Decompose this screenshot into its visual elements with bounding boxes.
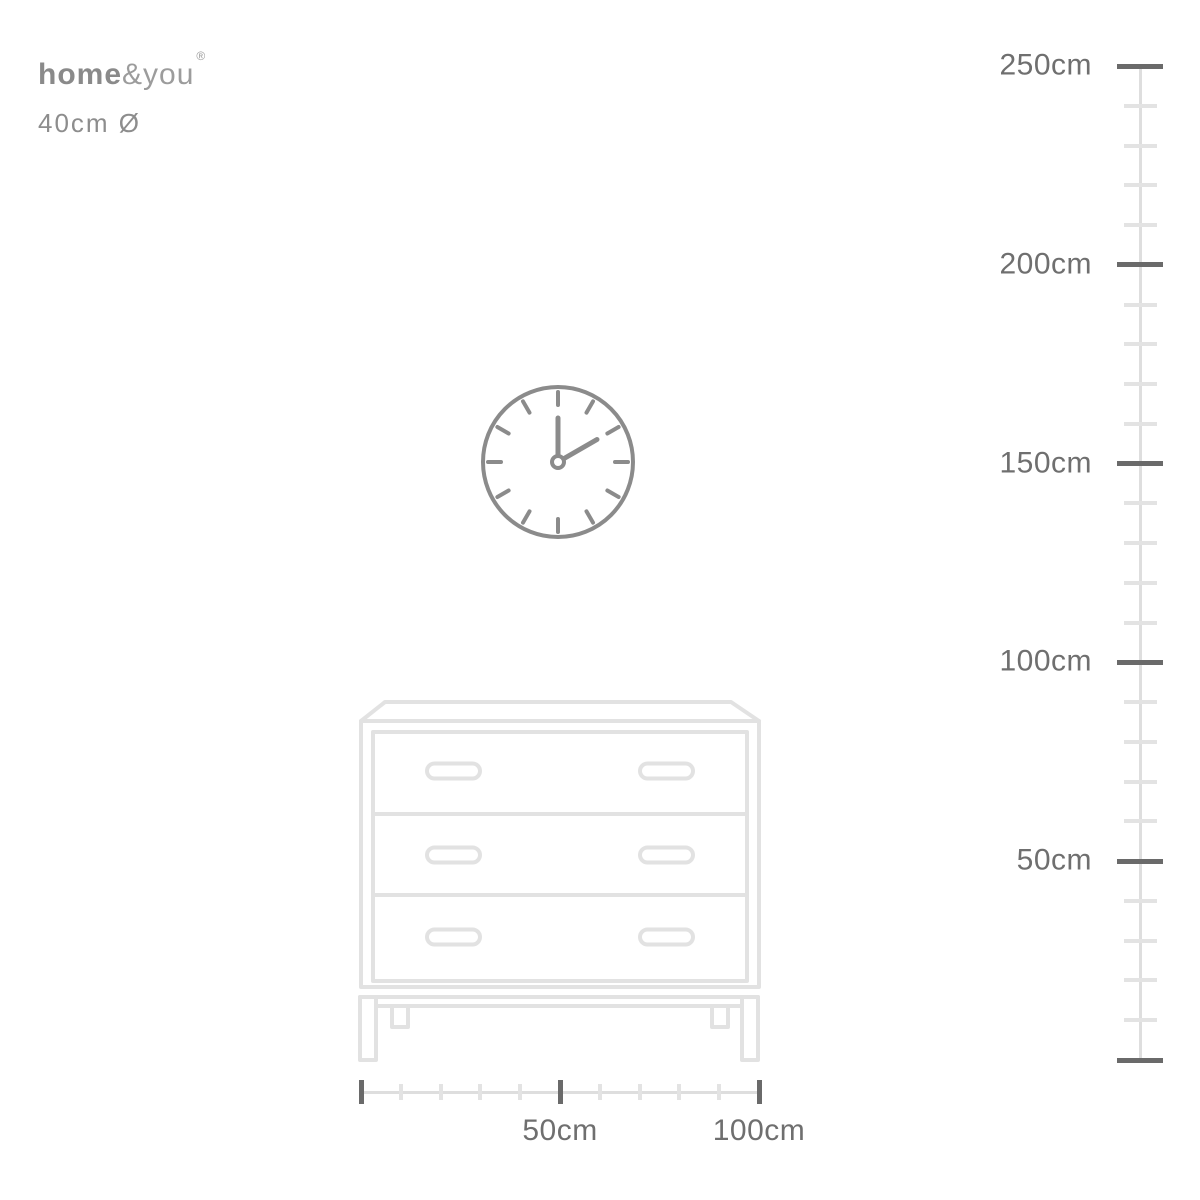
- drawer-handle: [640, 848, 693, 863]
- ruler-tick-major: [757, 1080, 762, 1104]
- ruler-tick-minor: [1124, 501, 1157, 505]
- ruler-tick-minor: [1124, 342, 1157, 346]
- ruler-tick-minor: [439, 1084, 443, 1100]
- ruler-tick-major: [1117, 660, 1163, 665]
- clock-hands: [552, 418, 597, 468]
- drawer-handle: [640, 764, 693, 779]
- brand-logo: home&you® 40cm Ø: [38, 52, 204, 139]
- product-dimension-note: 40cm Ø: [38, 108, 204, 139]
- dresser-top-face: [361, 702, 759, 721]
- ruler-tick-minor: [717, 1084, 721, 1100]
- ruler-tick-minor: [1124, 382, 1157, 386]
- leg-rail: [360, 997, 758, 1006]
- ruler-tick-minor: [1124, 581, 1157, 585]
- clock-hub: [552, 456, 564, 468]
- ruler-tick-minor: [1124, 978, 1157, 982]
- brand-logo-you: &you: [122, 58, 194, 91]
- leg-inner: [392, 1006, 408, 1027]
- ruler-tick-minor: [1124, 303, 1157, 307]
- ruler-tick-minor: [598, 1084, 602, 1100]
- leg-outer: [742, 997, 758, 1060]
- ruler-tick-minor: [1124, 104, 1157, 108]
- ruler-label-250cm: 250cm: [999, 48, 1092, 82]
- drawer-handle: [640, 930, 693, 945]
- ruler-tick-minor: [677, 1084, 681, 1100]
- ruler-tick-major: [1117, 64, 1163, 69]
- ruler-tick-minor: [1124, 780, 1157, 784]
- ruler-tick-minor: [638, 1084, 642, 1100]
- dresser-illustration: [355, 695, 765, 1065]
- ruler-tick-major: [558, 1080, 563, 1104]
- ruler-tick-minor: [1124, 422, 1157, 426]
- ruler-tick-major: [359, 1080, 364, 1104]
- ruler-axis-vertical: [1139, 66, 1142, 1060]
- leg-outer: [360, 997, 376, 1060]
- ruler-tick-minor: [1124, 819, 1157, 823]
- ruler-tick-minor: [478, 1084, 482, 1100]
- ruler-label-150cm: 150cm: [999, 446, 1092, 480]
- ruler-tick-minor: [1124, 700, 1157, 704]
- ruler-label-50cm: 50cm: [522, 1114, 597, 1148]
- drawer-handle: [427, 848, 480, 863]
- ruler-tick-major: [1117, 262, 1163, 267]
- ruler-tick-major: [1117, 859, 1163, 864]
- ruler-label-50cm: 50cm: [1017, 844, 1092, 878]
- product-size-guide-diagram: home&you® 40cm Ø: [0, 0, 1200, 1200]
- brand-logo-home: home: [38, 58, 122, 91]
- dresser-body: [361, 702, 759, 987]
- ruler-tick-minor: [1124, 541, 1157, 545]
- ruler-tick-minor: [1124, 740, 1157, 744]
- leg-inner: [712, 1006, 728, 1027]
- ruler-tick-minor: [1124, 899, 1157, 903]
- ruler-label-100cm: 100cm: [713, 1114, 806, 1148]
- drawer-handle: [427, 764, 480, 779]
- ruler-label-200cm: 200cm: [999, 247, 1092, 281]
- ruler-tick-minor: [1124, 223, 1157, 227]
- ruler-tick-major: [1117, 461, 1163, 466]
- ruler-tick-minor: [1124, 144, 1157, 148]
- ruler-tick-minor: [1124, 1018, 1157, 1022]
- wall-clock-illustration: [478, 382, 638, 542]
- drawer-handle: [427, 930, 480, 945]
- ruler-tick-minor: [1124, 183, 1157, 187]
- ruler-tick-minor: [1124, 621, 1157, 625]
- dresser-legs: [360, 997, 758, 1060]
- brand-logo-text: home&you®: [38, 52, 204, 92]
- ruler-tick-minor: [399, 1084, 403, 1100]
- ruler-tick-major: [1117, 1058, 1163, 1063]
- ruler-tick-minor: [518, 1084, 522, 1100]
- ruler-label-100cm: 100cm: [999, 645, 1092, 679]
- ruler-tick-minor: [1124, 939, 1157, 943]
- ruler-axis-horizontal: [361, 1091, 759, 1094]
- registered-trademark-icon: ®: [196, 49, 206, 63]
